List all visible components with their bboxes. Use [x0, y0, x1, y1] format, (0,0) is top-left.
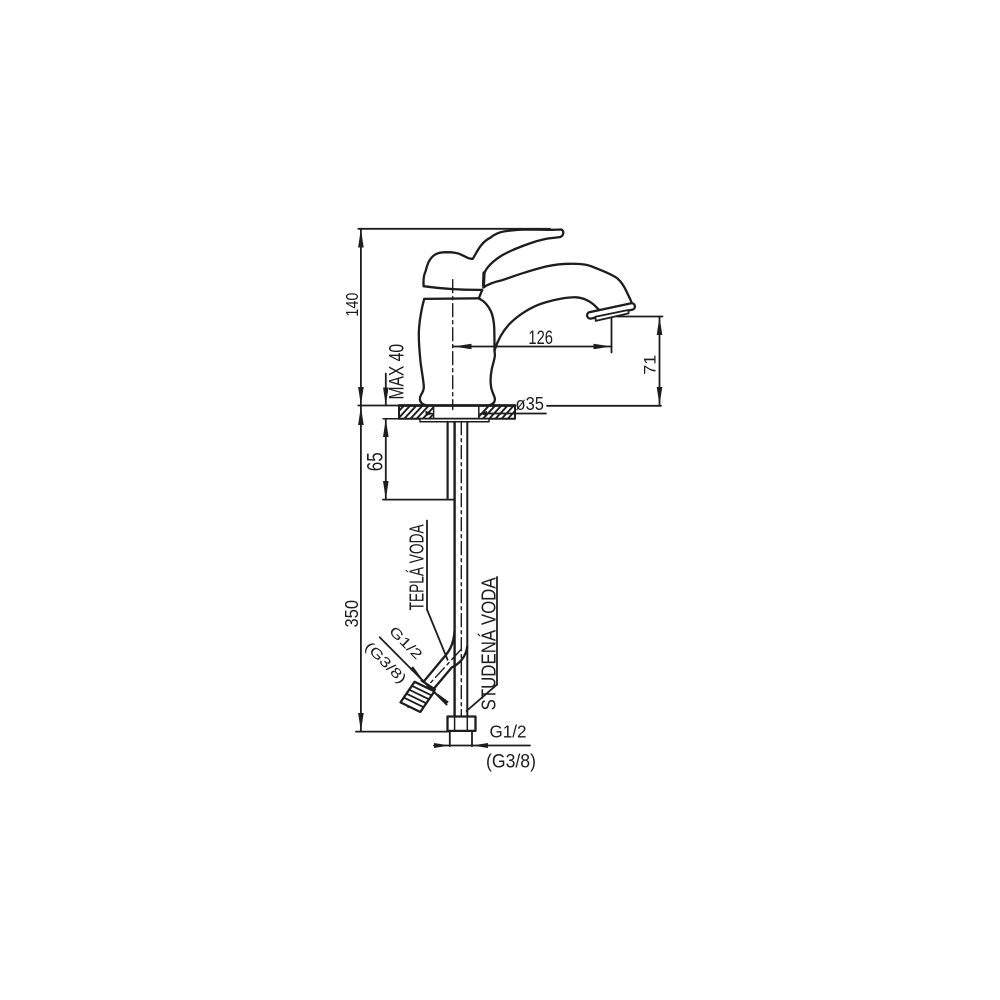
svg-text:TEPLÁ VODA: TEPLÁ VODA [406, 524, 429, 610]
svg-text:140: 140 [342, 292, 362, 316]
svg-text:(G3/8): (G3/8) [486, 751, 536, 773]
svg-text:65: 65 [363, 452, 388, 471]
svg-text:STUDENÁ VODA: STUDENÁ VODA [478, 577, 501, 711]
svg-text:71: 71 [641, 355, 660, 375]
svg-text:350: 350 [342, 600, 362, 628]
svg-text:G1/2: G1/2 [490, 722, 527, 742]
svg-text:ø35: ø35 [516, 394, 545, 414]
svg-text:MAX 40: MAX 40 [385, 344, 409, 400]
svg-text:126: 126 [528, 328, 553, 349]
